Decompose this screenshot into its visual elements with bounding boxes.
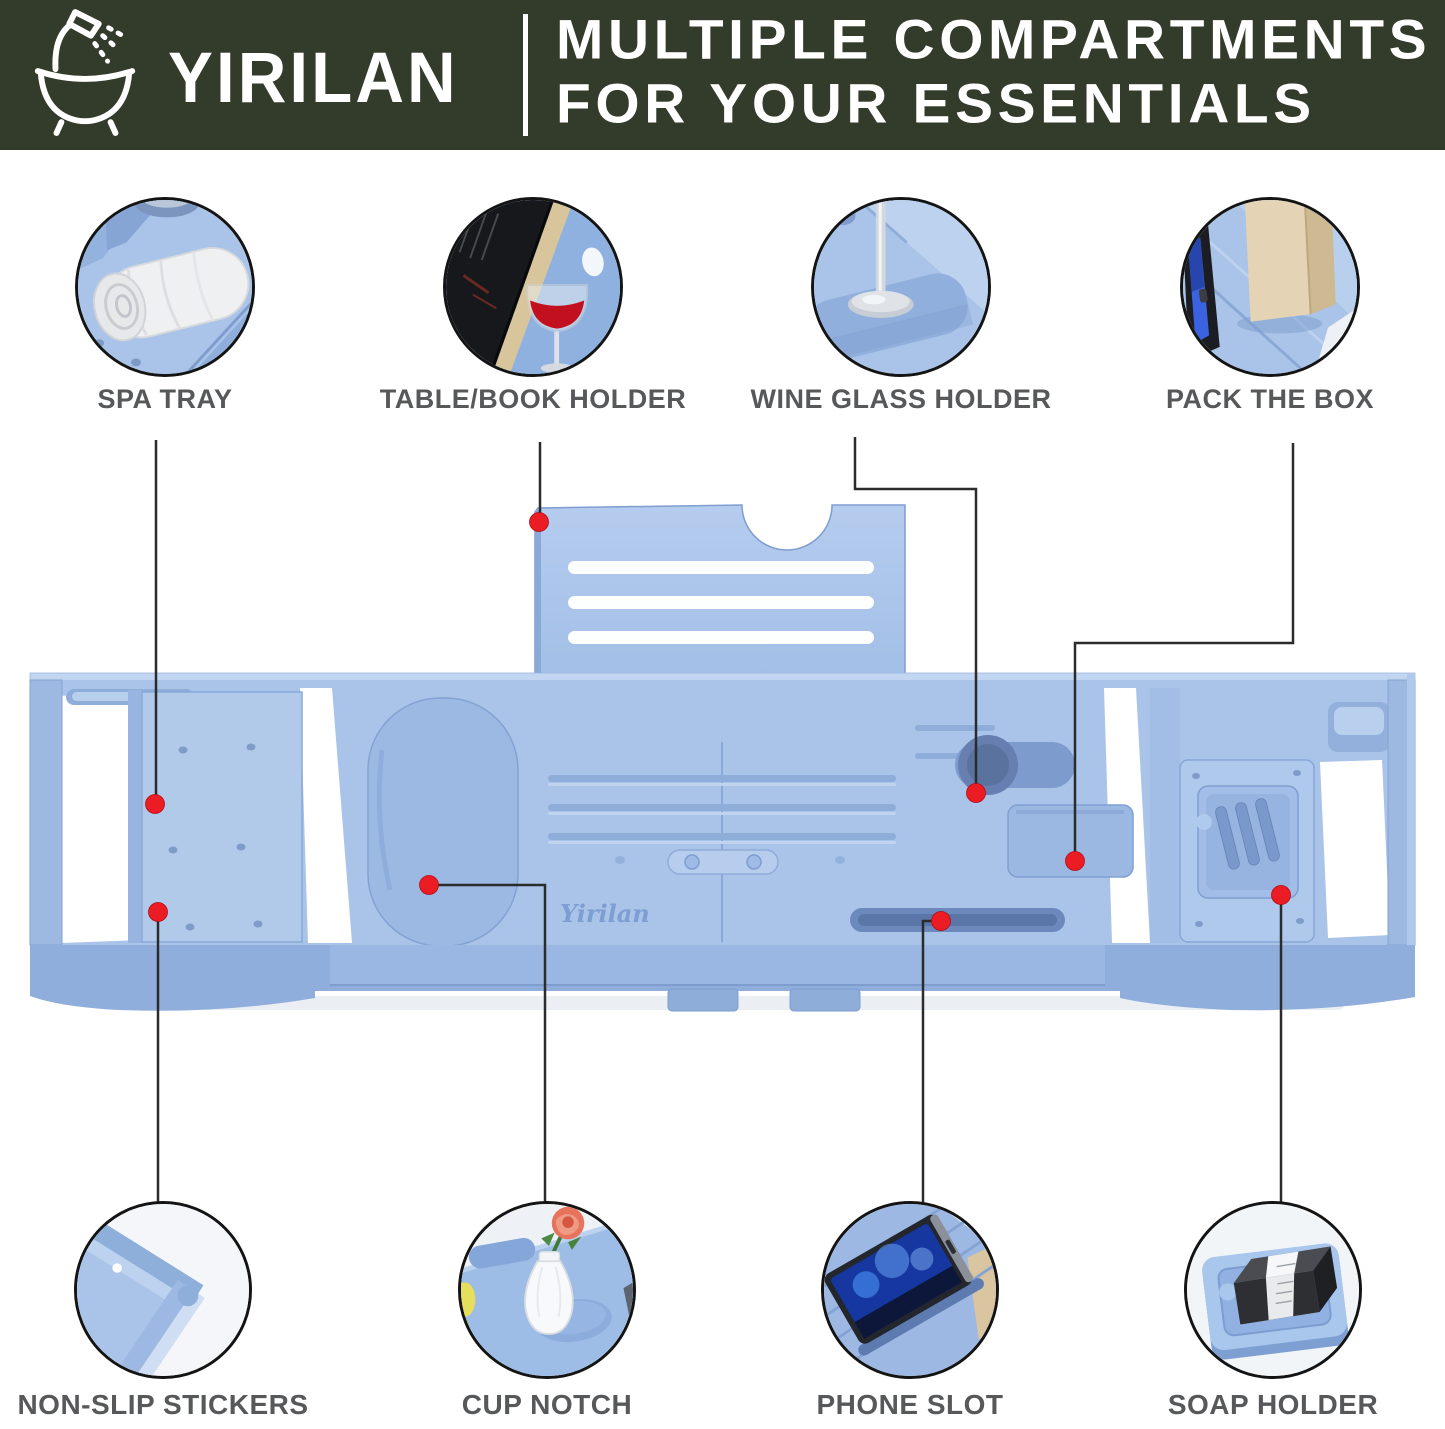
header-title-line-1: MULTIPLE COMPARTMENTS	[556, 6, 1431, 74]
feature-photo-spa-tray	[75, 197, 255, 377]
callout-dot-non-slip-stickers	[149, 903, 168, 922]
feature-label-spa-tray: SPA TRAY	[0, 384, 365, 415]
phone-slot-photo-illustration	[824, 1204, 996, 1376]
product-infographic: YIRILAN MULTIPLE COMPARTMENTS FOR YOUR E…	[0, 0, 1445, 1429]
feature-photo-cup-notch	[458, 1201, 636, 1379]
feature-label-soap-holder: SOAP HOLDER	[1073, 1389, 1445, 1421]
header-title-line-2: FOR YOUR ESSENTIALS	[556, 70, 1431, 138]
callout-dot-pack-the-box	[1066, 852, 1085, 871]
header-divider	[523, 14, 528, 136]
soap-holder-photo-illustration	[1187, 1204, 1359, 1376]
feature-photo-wine-glass-holder	[811, 197, 991, 377]
feature-photo-soap-holder	[1184, 1201, 1362, 1379]
feature-photo-non-slip-stickers	[74, 1201, 252, 1379]
header-title: MULTIPLE COMPARTMENTS FOR YOUR ESSENTIAL…	[556, 6, 1311, 130]
bathtub-caddy-illustration: Yirilan	[0, 430, 1445, 1205]
spa-tray-area	[142, 692, 302, 942]
cup-notch-photo-illustration	[461, 1204, 633, 1376]
spa-tray-photo-illustration	[78, 200, 252, 374]
wine-glass-holder-photo-illustration	[814, 200, 988, 374]
callout-dot-soap-holder	[1272, 886, 1291, 905]
soap-holder-area	[1180, 760, 1314, 942]
feature-photo-table-book-holder	[443, 197, 623, 377]
non-slip-stickers-photo-illustration	[77, 1204, 249, 1376]
tray-body: Yirilan	[30, 673, 1415, 1011]
brand-logo: YIRILAN	[168, 36, 459, 118]
callout-dot-phone-slot	[932, 912, 951, 931]
callout-dot-cup-notch	[420, 876, 439, 895]
bathtub-icon	[26, 8, 144, 140]
feature-photo-pack-the-box	[1180, 197, 1360, 377]
feature-label-wine-glass-holder: WINE GLASS HOLDER	[701, 384, 1101, 415]
feature-label-phone-slot: PHONE SLOT	[710, 1389, 1110, 1421]
callout-dot-wine-glass-holder	[967, 784, 986, 803]
cardboard-box	[1245, 200, 1336, 322]
callout-dot-spa-tray	[146, 795, 165, 814]
non-slip-sticker-dot	[112, 1263, 122, 1273]
phone-slot-area	[850, 908, 1065, 932]
feature-photo-phone-slot	[821, 1201, 999, 1379]
cup-notch-area	[368, 698, 518, 946]
feature-label-pack-the-box: PACK THE BOX	[1070, 384, 1445, 415]
pack-the-box-photo-illustration	[1183, 200, 1357, 374]
header-banner: YIRILAN MULTIPLE COMPARTMENTS FOR YOUR E…	[0, 0, 1445, 150]
feature-label-table-book-holder: TABLE/BOOK HOLDER	[333, 384, 733, 415]
embossed-brand: Yirilan	[560, 899, 650, 928]
feature-label-non-slip-stickers: NON-SLIP STICKERS	[0, 1389, 363, 1421]
feature-label-cup-notch: CUP NOTCH	[347, 1389, 747, 1421]
callout-dot-table-book-holder	[530, 513, 549, 532]
table-book-holder-photo-illustration	[446, 200, 620, 374]
